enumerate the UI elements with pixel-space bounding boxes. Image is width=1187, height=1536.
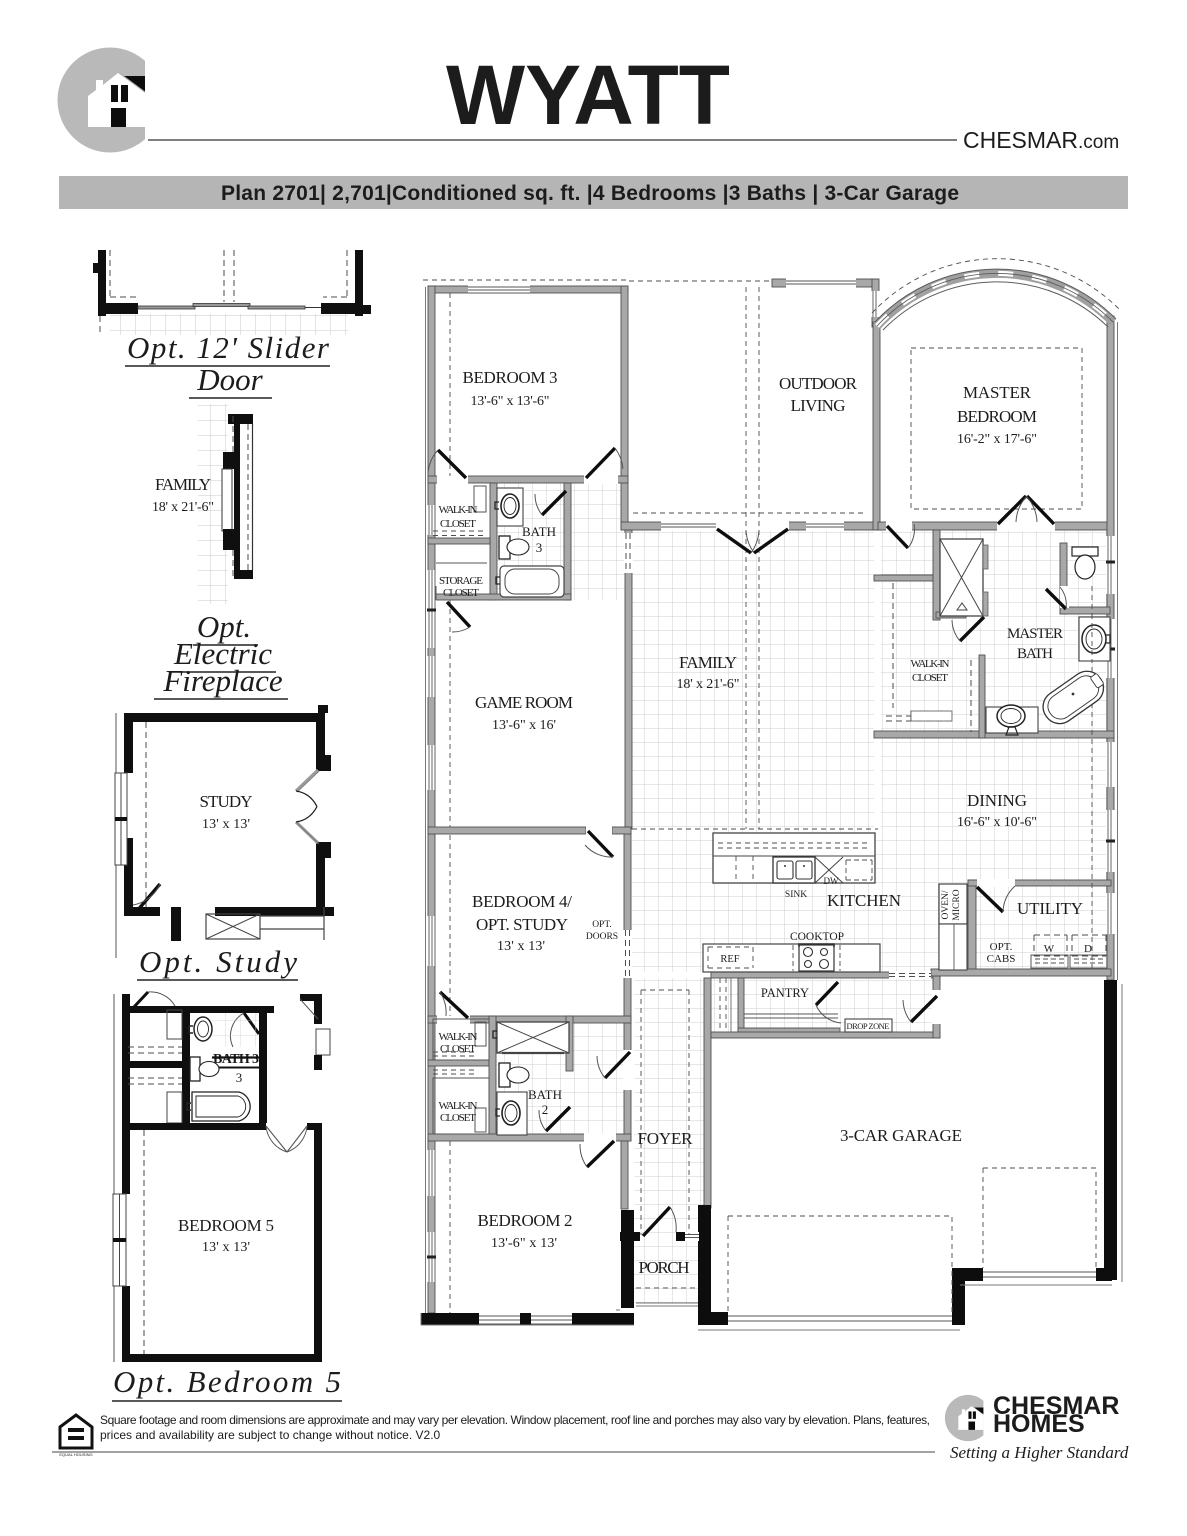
svg-text:3: 3	[236, 1070, 243, 1085]
svg-text:W: W	[1044, 943, 1055, 955]
svg-text:MASTER: MASTER	[1007, 626, 1063, 642]
svg-text:CLOSET: CLOSET	[440, 518, 476, 530]
svg-text:13' x 13': 13' x 13'	[202, 1240, 250, 1255]
svg-text:HOMES: HOMES	[993, 1410, 1085, 1438]
svg-text:18' x 21'-6": 18' x 21'-6"	[152, 500, 214, 515]
svg-text:STUDY: STUDY	[200, 792, 253, 811]
svg-text:OPT. STUDY: OPT. STUDY	[476, 915, 568, 934]
svg-text:LIVING: LIVING	[791, 396, 846, 415]
svg-text:BEDROOM 4/: BEDROOM 4/	[472, 892, 572, 911]
svg-text:UTILITY: UTILITY	[1017, 899, 1083, 918]
svg-text:Opt. Study: Opt. Study	[139, 944, 297, 979]
svg-text:16'-6" x 10'-6": 16'-6" x 10'-6"	[957, 815, 1037, 830]
svg-text:WYATT: WYATT	[446, 48, 730, 142]
svg-text:COOKTOP: COOKTOP	[790, 931, 844, 943]
svg-text:BEDROOM 3: BEDROOM 3	[463, 368, 558, 387]
svg-text:prices and availability are su: prices and availability are subject to c…	[100, 1428, 441, 1442]
svg-text:2: 2	[542, 1102, 549, 1117]
svg-text:13'-6" x 16': 13'-6" x 16'	[492, 718, 556, 733]
svg-text:OVEN/: OVEN/	[941, 890, 951, 919]
svg-text:13' x 13': 13' x 13'	[202, 817, 250, 832]
svg-text:D: D	[1084, 943, 1092, 955]
svg-text:FOYER: FOYER	[638, 1129, 694, 1148]
svg-text:CABS: CABS	[987, 953, 1016, 965]
svg-text:Setting a Higher Standard: Setting a Higher Standard	[950, 1443, 1129, 1462]
svg-text:DW: DW	[824, 876, 839, 886]
svg-text:GAME ROOM: GAME ROOM	[475, 693, 573, 712]
svg-text:PORCH: PORCH	[639, 1258, 690, 1277]
svg-text:DROP ZONE: DROP ZONE	[847, 1021, 890, 1031]
svg-text:3: 3	[536, 540, 543, 555]
svg-text:CLOSET: CLOSET	[440, 1112, 476, 1124]
svg-text:Door: Door	[196, 362, 263, 397]
svg-text:18' x 21'-6": 18' x 21'-6"	[677, 677, 740, 692]
svg-text:Opt. Bedroom 5: Opt. Bedroom 5	[113, 1364, 341, 1399]
svg-text:Plan 2701| 2,701|Conditioned s: Plan 2701| 2,701|Conditioned sq. ft. |4 …	[221, 182, 959, 205]
svg-text:BEDROOM 2: BEDROOM 2	[478, 1211, 573, 1230]
svg-text:BATH: BATH	[1017, 646, 1053, 662]
svg-text:FAMILY: FAMILY	[679, 653, 737, 672]
svg-text:Opt. 12' Slider: Opt. 12' Slider	[127, 330, 330, 365]
svg-text:WALK-IN: WALK-IN	[911, 658, 950, 670]
svg-text:MASTER: MASTER	[963, 383, 1032, 402]
svg-text:13' x 13': 13' x 13'	[497, 939, 545, 954]
svg-text:BATH 3: BATH 3	[213, 1052, 259, 1067]
svg-text:WALK-IN: WALK-IN	[439, 1031, 478, 1043]
svg-text:Square footage and room dimens: Square footage and room dimensions are a…	[100, 1413, 930, 1427]
svg-text:BEDROOM: BEDROOM	[957, 407, 1037, 426]
svg-text:FAMILY: FAMILY	[155, 475, 211, 494]
svg-text:MICRO: MICRO	[952, 889, 962, 920]
svg-text:DOORS: DOORS	[586, 932, 618, 942]
svg-text:OPT.: OPT.	[592, 920, 612, 930]
svg-text:WALK-IN: WALK-IN	[439, 1100, 478, 1112]
svg-text:STORAGE: STORAGE	[439, 575, 483, 587]
svg-text:BATH: BATH	[522, 524, 556, 539]
svg-text:Fireplace: Fireplace	[162, 663, 283, 698]
svg-text:OPT.: OPT.	[990, 941, 1013, 953]
svg-text:DINING: DINING	[967, 791, 1027, 810]
svg-text:WALK-IN: WALK-IN	[439, 504, 478, 516]
svg-text:CLOSET: CLOSET	[440, 1043, 476, 1055]
svg-text:REF: REF	[720, 954, 739, 965]
svg-text:13'-6" x 13'-6": 13'-6" x 13'-6"	[471, 394, 550, 409]
svg-text:CHESMAR.com: CHESMAR.com	[963, 127, 1119, 153]
svg-text:CLOSET: CLOSET	[912, 672, 948, 684]
svg-text:BEDROOM 5: BEDROOM 5	[178, 1216, 274, 1235]
svg-text:CLOSET: CLOSET	[443, 587, 479, 599]
svg-text:13'-6" x 13': 13'-6" x 13'	[491, 1236, 557, 1251]
svg-text:SINK: SINK	[785, 890, 807, 900]
svg-text:OUTDOOR: OUTDOOR	[779, 374, 858, 393]
svg-text:BATH: BATH	[528, 1087, 562, 1102]
svg-text:EQUAL HOUSING: EQUAL HOUSING	[59, 1452, 92, 1457]
svg-text:PANTRY: PANTRY	[761, 986, 809, 1000]
svg-text:16'-2" x 17'-6": 16'-2" x 17'-6"	[957, 432, 1037, 447]
svg-text:3-CAR GARAGE: 3-CAR GARAGE	[840, 1126, 962, 1145]
svg-text:KITCHEN: KITCHEN	[827, 891, 901, 910]
